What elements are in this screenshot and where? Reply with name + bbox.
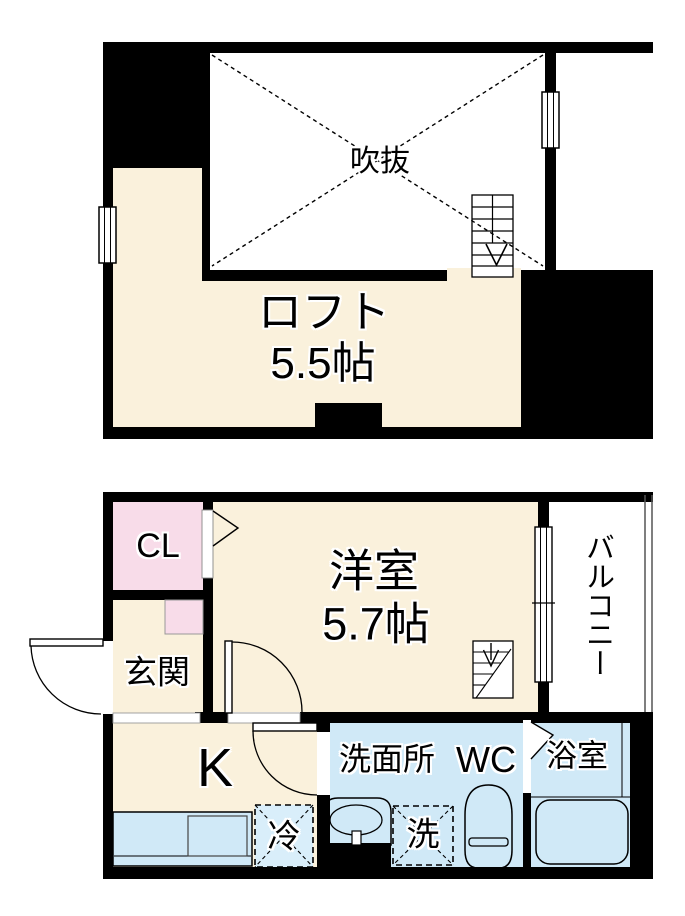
loft-size-label: 5.5帖	[270, 342, 375, 386]
entrance-step	[165, 600, 203, 634]
fridge-label: 冷	[268, 820, 301, 853]
washroom-label: 洗面所	[339, 743, 435, 775]
balcony-window-icon	[532, 527, 555, 682]
entrance-door-icon	[30, 639, 103, 714]
floor-plan-drawing	[0, 0, 685, 916]
balcony-label: バルコニー	[583, 533, 612, 678]
wall-bump	[315, 403, 382, 427]
bath-door-gap	[523, 720, 531, 793]
washer-label: 洗	[407, 818, 440, 851]
loft-floor-area	[113, 168, 205, 427]
upper-floor-plan	[99, 42, 653, 439]
western-room-size-label: 5.7帖	[322, 602, 430, 647]
entrance-door-gap	[103, 641, 113, 714]
entrance-kitchen-threshold	[113, 713, 200, 723]
stairs-icon-lower	[473, 641, 513, 698]
loft-label: ロフト	[258, 291, 390, 335]
balcony-railing	[645, 495, 652, 712]
kitchen-washroom-door-gap	[317, 732, 330, 795]
floor-plan-page: 吹抜 ロフト 5.5帖 CL 玄関 洋室 5.7帖 バルコニー K 洗面所 WC…	[0, 0, 685, 916]
closet-label: CL	[136, 529, 179, 563]
bath-label: 浴室	[546, 741, 608, 772]
stairs-icon-upper	[472, 195, 513, 277]
kitchen-label: K	[197, 741, 233, 795]
upper-right-window-icon	[542, 92, 559, 148]
entrance-label: 玄関	[124, 656, 190, 689]
upper-left-window-icon	[99, 207, 116, 263]
washbasin-counter-wall	[317, 843, 391, 873]
western-room-label: 洋室	[329, 549, 419, 594]
room-kitchen-door-gap	[228, 713, 300, 723]
wc-label: WC	[456, 742, 516, 778]
kitchen-counter-icon	[113, 812, 252, 866]
void-label: 吹抜	[350, 147, 410, 177]
